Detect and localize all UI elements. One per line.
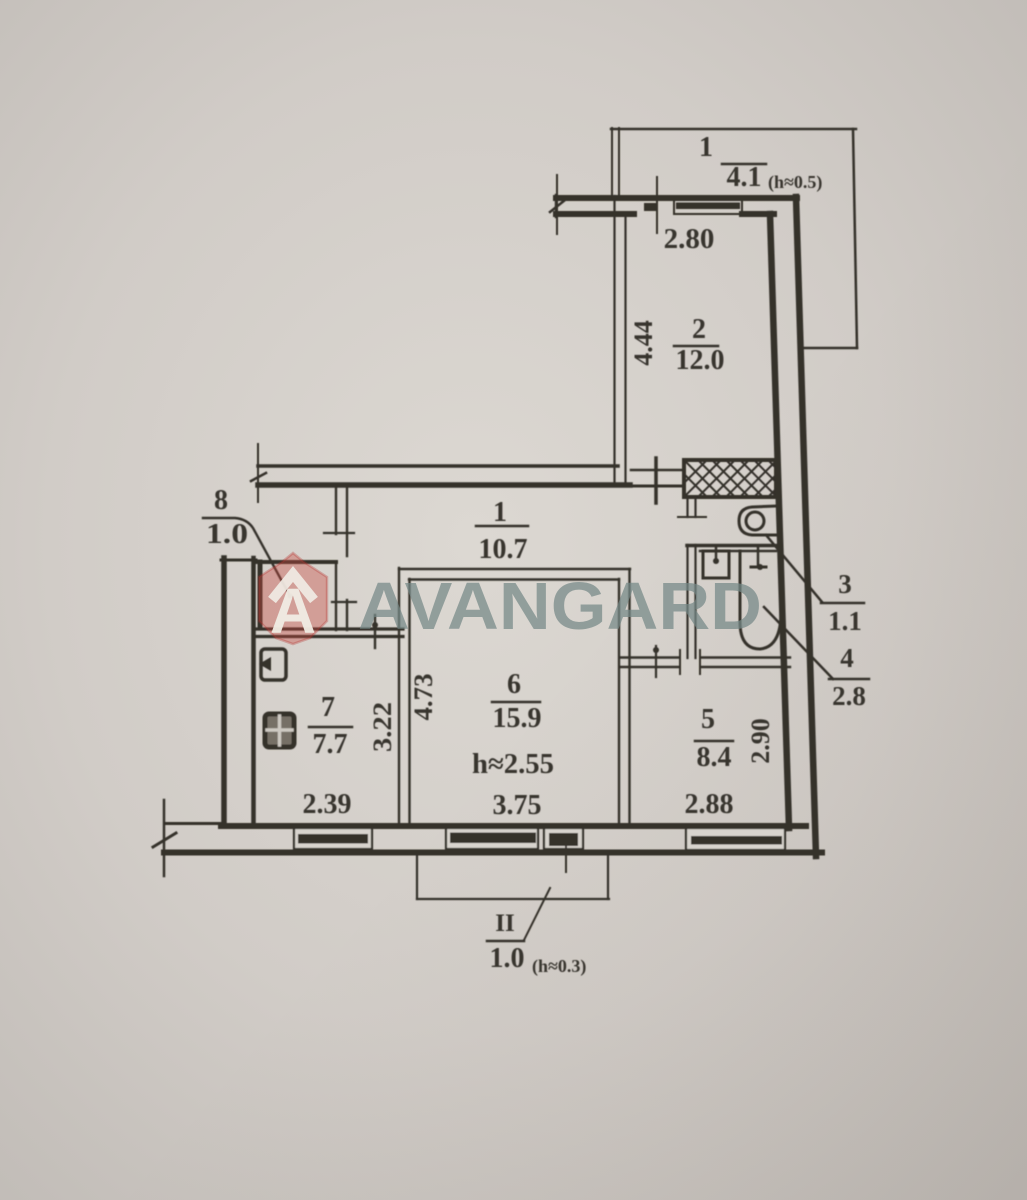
svg-text:7: 7 [321, 692, 335, 723]
svg-text:1: 1 [493, 497, 507, 528]
svg-text:2.39: 2.39 [303, 789, 352, 820]
svg-text:3.75: 3.75 [493, 790, 542, 821]
svg-text:5: 5 [701, 704, 715, 735]
svg-text:II: II [495, 910, 514, 937]
svg-text:15.9: 15.9 [493, 703, 542, 734]
svg-text:A: A [270, 575, 316, 647]
svg-text:h≈2.55: h≈2.55 [472, 749, 554, 780]
svg-text:4.44: 4.44 [629, 320, 658, 366]
svg-text:6: 6 [507, 669, 521, 700]
svg-text:1.0: 1.0 [490, 943, 525, 974]
svg-text:2.80: 2.80 [664, 223, 715, 255]
svg-text:4.73: 4.73 [409, 674, 438, 721]
svg-text:3.22: 3.22 [368, 702, 397, 752]
svg-text:1: 1 [699, 132, 713, 163]
svg-text:1.0: 1.0 [206, 519, 248, 550]
svg-text:2.90: 2.90 [746, 718, 775, 764]
svg-text:10.7: 10.7 [479, 534, 528, 565]
svg-text:4: 4 [840, 643, 854, 673]
svg-text:3: 3 [838, 569, 852, 599]
svg-text:1.1: 1.1 [828, 606, 862, 636]
svg-text:8.4: 8.4 [697, 742, 732, 773]
svg-text:12.0: 12.0 [676, 345, 725, 376]
svg-text:(h≈0.3): (h≈0.3) [532, 956, 586, 977]
svg-text:AVANGARD: AVANGARD [358, 569, 762, 644]
svg-text:8: 8 [214, 485, 228, 516]
svg-text:(h≈0.5): (h≈0.5) [768, 172, 822, 193]
svg-text:2.88: 2.88 [685, 789, 734, 820]
svg-text:4.1: 4.1 [727, 162, 762, 193]
svg-text:2.8: 2.8 [832, 681, 866, 711]
svg-text:2: 2 [692, 314, 706, 345]
svg-text:7.7: 7.7 [313, 729, 348, 760]
